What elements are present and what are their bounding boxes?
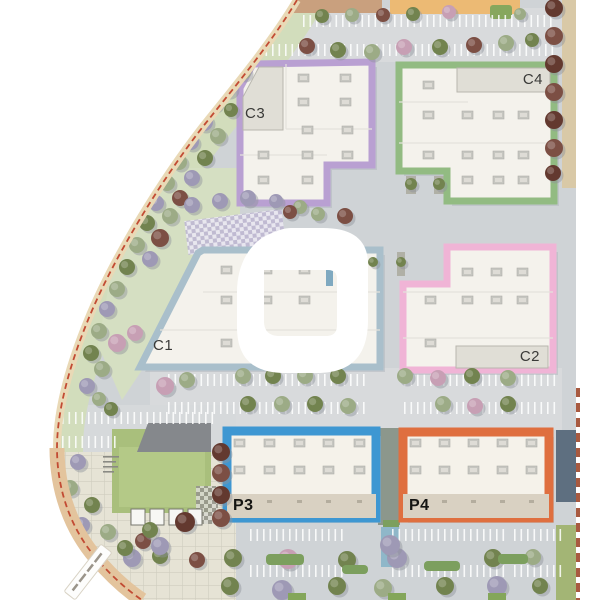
right-edge-green — [556, 525, 576, 600]
building-p3-dock-strip — [227, 494, 376, 518]
building-c4-label-panel — [457, 68, 550, 92]
site-plan-image: C3 C4 C1 C2 P3 P4 — [0, 0, 600, 600]
right-edge-slate — [556, 430, 576, 502]
site-plan-canvas — [0, 0, 600, 600]
green-field-inner — [119, 447, 205, 507]
building-p4-dock-strip — [403, 494, 549, 518]
site-area — [0, 0, 600, 600]
building-c2-label-panel — [456, 346, 548, 368]
bioswale-hedge — [383, 520, 399, 528]
p-buildings-gap — [378, 428, 400, 525]
shade-structure — [137, 423, 211, 452]
